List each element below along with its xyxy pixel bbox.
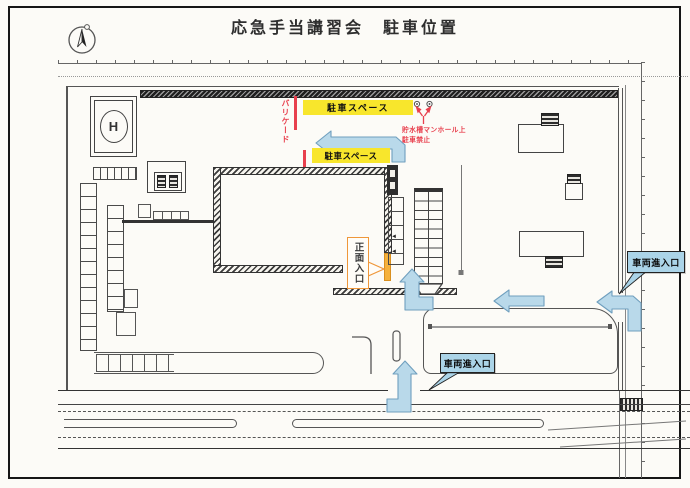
yard-fence-end (459, 270, 464, 275)
map-overlay (0, 0, 690, 488)
route-arrow-westbound (494, 290, 544, 312)
manhole-warning-line2: 駐車禁止 (402, 134, 430, 144)
lane-merge-line-2 (560, 439, 686, 447)
vehicle-entrance-callout-east: 車両進入口 (627, 251, 685, 273)
barricade-mark-lower (303, 150, 306, 167)
callout-tail-south-gate (429, 372, 460, 390)
barricade-mark-upper (294, 96, 297, 130)
lane-merge-line-1 (548, 421, 686, 430)
drive-curb-west (352, 337, 371, 374)
parking-space-bar-lower: 駐車スペース (312, 148, 390, 163)
vehicle-entrance-callout-south: 車両進入口 (440, 353, 495, 373)
north-arrow-icon (69, 25, 95, 53)
manhole-warning-line1: 貯水槽マンホール上 (402, 124, 466, 134)
parking-space-bar-upper: 駐車スペース (303, 100, 413, 115)
drive-curb-post (393, 331, 400, 361)
barricade-label: バリケード (280, 99, 291, 159)
route-arrow-main-gate-in (387, 361, 417, 412)
callout-tail-east-gate (619, 271, 647, 294)
main-entrance-callout: 正面入口 (347, 237, 369, 289)
manhole-pointer-arrow (417, 107, 431, 124)
parking-map-page: 応急手当講習会 駐車位置 H ◄ ◄ (0, 0, 690, 488)
route-arrow-east-gate-in (597, 291, 641, 331)
manhole-markers (414, 101, 432, 106)
